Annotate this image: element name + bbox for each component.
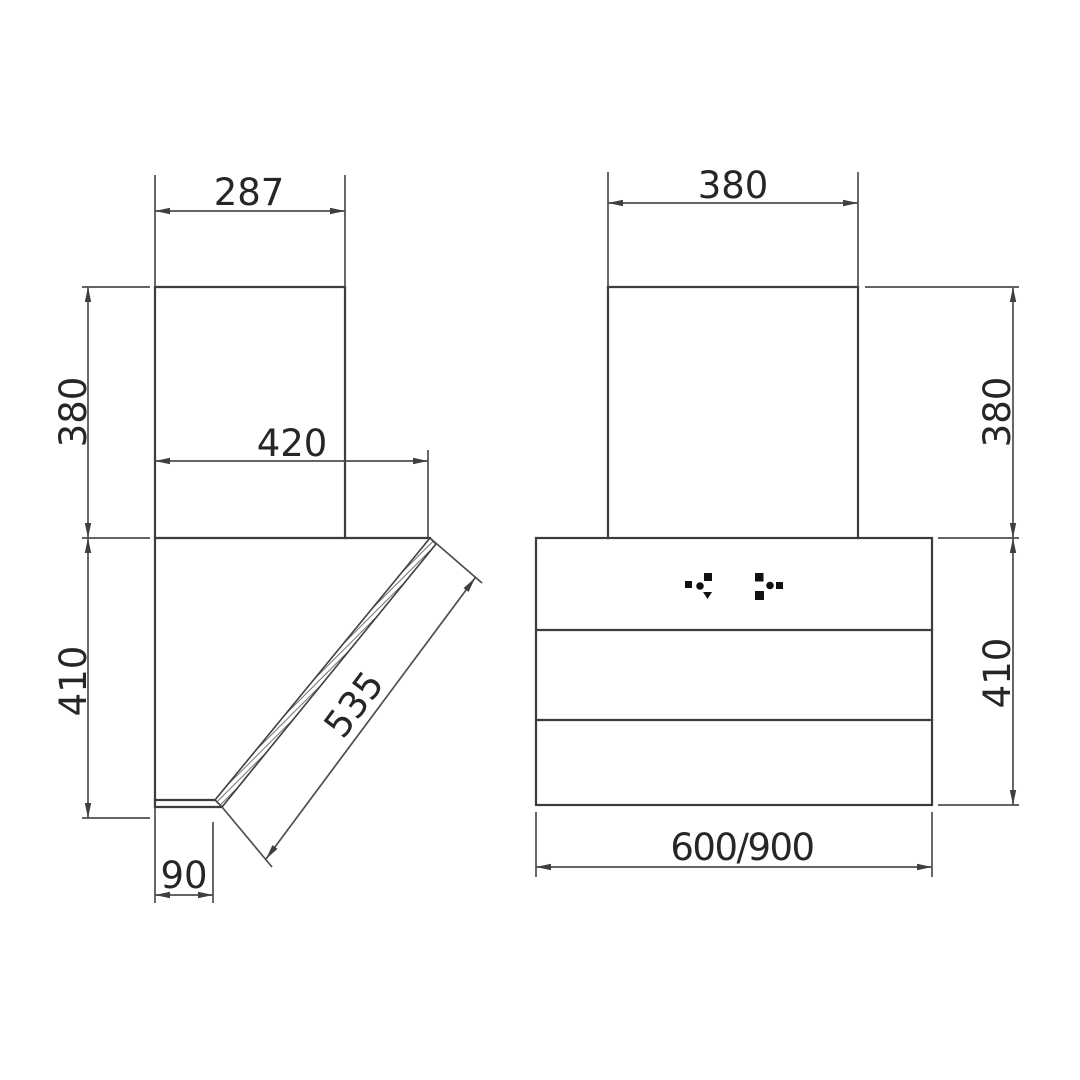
dim-label-side-body-height: 410 [52,646,95,717]
dim-label-side-chimney-width: 287 [214,171,285,214]
dim-label-side-bottom-depth: 90 [160,854,207,897]
dim-label-side-top-depth: 420 [257,422,328,465]
dim-label-front-chimney-width: 380 [698,164,769,207]
dim-label-front-body-height: 410 [976,638,1019,709]
dimension-drawing: 287 380 420 410 535 [0,0,1080,1080]
dim-label-front-body-width: 600/900 [670,826,813,869]
dim-label-side-chimney-height: 380 [52,377,95,448]
page-background [0,0,1080,1080]
dim-label-front-chimney-height: 380 [976,377,1019,448]
